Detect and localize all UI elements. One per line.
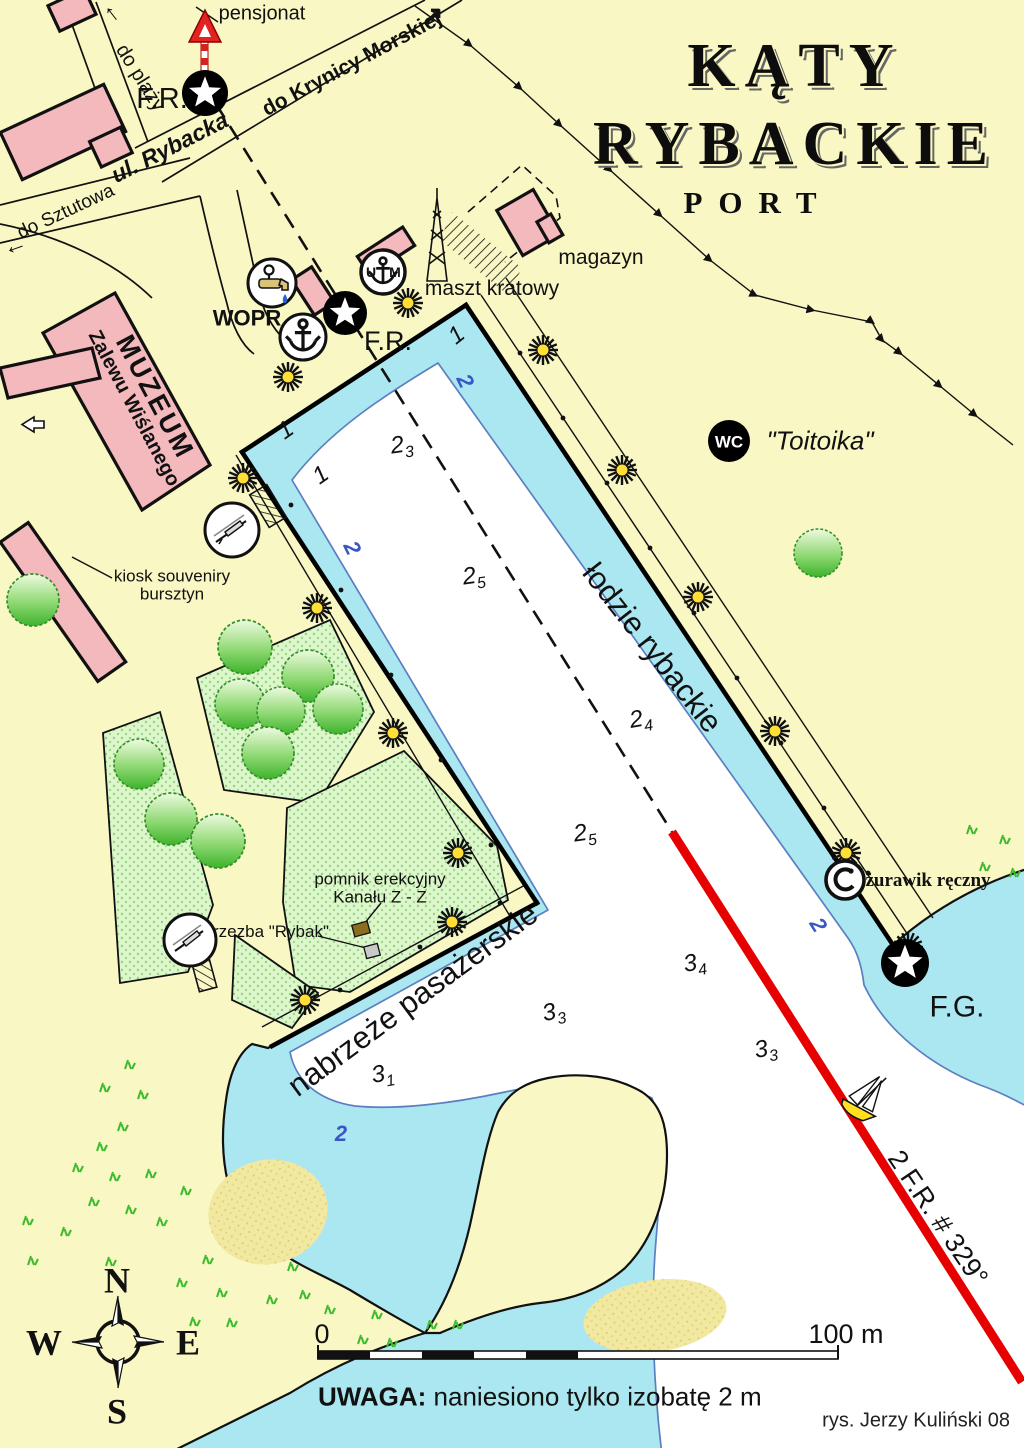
depth-sounding: 33 — [752, 1033, 779, 1068]
depth-sounding: 31 — [369, 1058, 396, 1093]
map-subtitle: PORT — [683, 187, 832, 219]
isobath-label: 2 — [338, 537, 367, 559]
pensjonat-label: pensjonat — [219, 4, 306, 25]
compass-south-label: S — [107, 1393, 127, 1430]
wc-name-label: "Toitoika" — [766, 427, 873, 454]
fr-top-label: F.R. — [136, 84, 188, 114]
isobath-label: 2 — [804, 913, 833, 937]
ul-rybacka-label: ul. Rybacka — [108, 108, 233, 187]
maszt-kratowy-label: maszt kratowy — [425, 278, 559, 300]
magazyn-label: magazyn — [558, 247, 643, 269]
wopr-label: WOPR — [213, 308, 281, 331]
map-title-line2: RYBACKIE — [593, 112, 997, 176]
depth-sounding: 25 — [461, 561, 487, 596]
credit-label: rys. Jerzy Kuliński 08 — [822, 1411, 1010, 1432]
note-label: UWAGA: naniesiono tylko izobatę 2 m — [318, 1383, 762, 1410]
map-title-line1: KĄTY — [687, 34, 902, 98]
do-sztutowa-label: do Sztutowa — [14, 181, 117, 243]
arrow-up-icon: ↑ — [100, 0, 125, 27]
fg-label: F.G. — [929, 991, 984, 1022]
depth-sounding: 1 — [307, 460, 336, 494]
depth-sounding: 24 — [627, 703, 654, 738]
scale-end-label: 100 m — [808, 1320, 883, 1348]
depth-sounding: 34 — [681, 947, 708, 982]
arrow-northeast-icon: ↗ — [420, 1, 443, 30]
compass-north-label: N — [104, 1262, 130, 1299]
scale-start-label: 0 — [314, 1320, 329, 1348]
isobath-label: 2 — [451, 370, 480, 392]
zurawik-label: żurawik ręczny — [865, 871, 990, 891]
compass-east-label: E — [176, 1324, 200, 1361]
harbor-chart: U M WC — [0, 0, 1024, 1448]
depth-sounding: 25 — [572, 818, 598, 853]
pomnik-label: pomnik erekcyjny Kanału Z - Z — [314, 870, 445, 905]
fr-basin-label: F.R. — [364, 327, 412, 355]
compass-west-label: W — [26, 1324, 62, 1361]
rzezba-label: rzezba "Rybak" — [213, 923, 329, 941]
depth-sounding: 1 — [272, 415, 301, 449]
muzeum-label: MUZEUM Zalewu Wiślanego — [84, 314, 208, 490]
isobath-label: 2 — [335, 1121, 347, 1147]
depth-sounding: 33 — [540, 996, 568, 1032]
depth-sounding: 23 — [389, 430, 415, 465]
lodzie-rybackie-label: łodzie rybackie — [576, 557, 728, 738]
leading-line-label: 2 F.R. # 329° — [883, 1145, 994, 1290]
kiosk-label: kiosk souveniry bursztyn — [114, 567, 230, 602]
depth-sounding: 1 — [443, 320, 473, 353]
